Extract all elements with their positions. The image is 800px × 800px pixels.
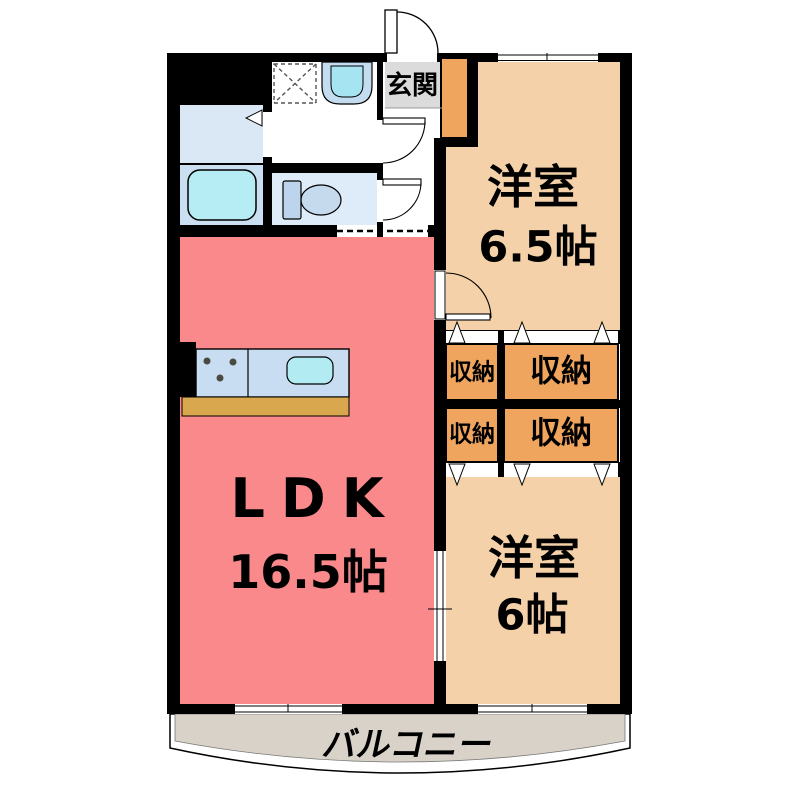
washroom-door-opening [377,120,383,163]
left-wall [167,53,180,714]
kitchen-pillar [180,342,196,397]
floor-plan: 玄関 洋室 6.5帖 収納 収納 収納 収納 LDK 16.5帖 洋室 6帖 バ… [0,0,800,800]
powder-washroom-opening [263,112,272,157]
ldk-name: LDK [214,472,399,526]
toilet-door-arc [383,179,421,220]
storage-label-2: 収納 [530,357,592,388]
storage-label-4: 収納 [530,419,592,450]
shoe-cabinet [441,58,468,138]
counter-edge [182,397,349,416]
powder-room [180,105,263,164]
sanitary-bottom-wall [177,225,337,237]
right-wall [620,53,632,714]
bedroom-bottom-name: 洋室 [488,535,580,581]
storage-label-3: 収納 [449,424,495,447]
washroom-door-arc [383,118,425,163]
entrance-opening [387,53,437,62]
bedroom-bottom-size: 6帖 [496,595,569,638]
sliding-door-opening [434,551,446,661]
kitchen-sink-icon [287,357,333,384]
bedroom-top-size: 6.5帖 [478,227,597,270]
washing-machine-area [274,64,316,103]
bathtub-icon [188,170,256,220]
ldk-size: 16.5帖 [228,549,388,595]
floor-plan-drawing [0,0,800,800]
storage-label-1: 収納 [449,362,495,385]
shoebox-right-wall [468,58,478,142]
balcony-label: バルコニー [320,728,497,762]
storage-row-divider [434,400,620,408]
washbasin-icon [322,62,372,104]
washroom-toilet-wall [272,163,377,173]
genkan-label: 玄関 [386,73,438,99]
kitchen [180,342,349,416]
bedroom-top-name: 洋室 [487,164,579,210]
toilet-door-opening [377,180,383,222]
entrance-door-arc [385,10,438,53]
bedroom-top-fill-upper [478,62,620,152]
